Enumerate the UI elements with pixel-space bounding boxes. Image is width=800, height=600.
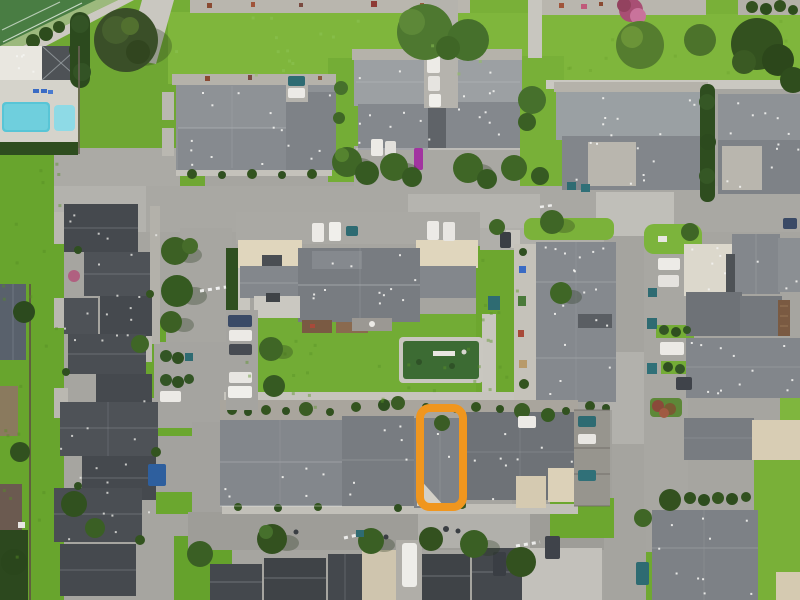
rowc-roof <box>264 558 326 600</box>
shrub <box>247 169 257 179</box>
patio-item <box>18 522 25 528</box>
car-white <box>427 221 439 240</box>
roof-vents <box>659 133 661 135</box>
roof-vents <box>643 179 645 181</box>
roof-vents <box>653 160 655 162</box>
roof-vents <box>602 248 604 250</box>
pedestrian-dot <box>443 526 449 532</box>
shrub <box>726 493 738 505</box>
grass-texture <box>43 250 46 253</box>
roof-vents <box>281 129 283 131</box>
clubhouse-beige-east <box>416 240 478 268</box>
grass-texture <box>55 163 58 166</box>
shrub <box>282 407 290 415</box>
grass-texture <box>291 62 294 65</box>
hedge <box>226 248 238 318</box>
grass-texture <box>306 371 309 374</box>
roof-vents <box>750 593 752 595</box>
roof-vents <box>757 261 759 263</box>
shrub <box>760 3 772 15</box>
roof-vents <box>590 142 592 144</box>
roof-vents <box>602 123 604 125</box>
grass-texture <box>497 311 500 314</box>
roof-vents <box>479 116 481 118</box>
roof-vents <box>359 77 361 79</box>
shrub <box>26 34 40 48</box>
car-dark <box>545 536 560 559</box>
shrub <box>151 447 161 457</box>
roof-vents <box>138 296 140 298</box>
roof-vents <box>106 313 108 315</box>
grass-texture <box>286 49 289 52</box>
grass-texture <box>505 376 508 379</box>
roof-vents <box>332 263 334 265</box>
roof-vents <box>270 112 272 114</box>
tree-small <box>434 415 450 431</box>
roof-vents <box>573 269 575 271</box>
roof-vents <box>555 248 557 250</box>
roof-vents <box>708 288 710 290</box>
roof-vents <box>671 524 673 526</box>
tree <box>10 442 30 462</box>
roof-vents <box>739 186 741 188</box>
roof-vents <box>704 592 706 594</box>
roof-vents <box>691 342 693 344</box>
roof-vents <box>238 92 240 94</box>
grass-texture <box>175 50 178 53</box>
tree-small <box>541 408 555 422</box>
tree <box>518 86 546 114</box>
shrub <box>314 503 322 511</box>
grass-texture <box>567 67 570 70</box>
shrub <box>218 171 226 179</box>
carport-beige <box>548 468 577 502</box>
grass-texture <box>255 74 258 77</box>
shrub <box>671 327 681 337</box>
grass-texture <box>605 57 608 60</box>
grass-texture <box>319 33 322 36</box>
pedestrian-dot <box>384 535 389 540</box>
dumpster-teal <box>488 296 500 310</box>
roof-vents <box>224 488 226 490</box>
shrub <box>684 492 696 504</box>
roof-vents <box>554 313 556 315</box>
roof-vents <box>785 287 787 289</box>
patio-item <box>599 2 603 6</box>
roof-vents <box>604 117 606 119</box>
roof-vents <box>724 272 726 274</box>
roof-vents <box>313 297 315 299</box>
shrub <box>62 368 70 376</box>
roof-vents <box>383 294 385 296</box>
grass-texture <box>19 385 22 388</box>
shrub <box>351 402 361 412</box>
roof-vents <box>384 429 386 431</box>
grass-texture <box>407 386 410 389</box>
tree <box>732 50 756 74</box>
shrub <box>74 482 82 490</box>
grass-texture <box>39 169 42 172</box>
roof-vents <box>691 249 693 251</box>
car-white <box>578 434 596 444</box>
shrub <box>53 21 65 33</box>
roof-vents <box>709 538 711 540</box>
dumpster-teal <box>185 353 193 361</box>
roof-vents <box>107 238 109 240</box>
cypress-tree <box>73 63 91 81</box>
tree <box>182 238 198 254</box>
tree <box>94 8 158 72</box>
playground-equipment <box>449 363 455 369</box>
dumpster-teal <box>356 530 364 537</box>
car-dark <box>500 232 511 248</box>
building-r2-roof <box>686 292 742 336</box>
patio-item <box>318 76 322 80</box>
neighbor-house-roof <box>0 386 18 436</box>
roof-vent-large <box>262 255 282 266</box>
grass-texture <box>478 365 481 368</box>
grass-texture <box>292 374 295 377</box>
grass-texture <box>332 36 335 39</box>
building-r4-roof <box>684 418 754 460</box>
grass-texture <box>484 304 487 307</box>
roof-vents <box>752 370 754 372</box>
building-a3b-inset <box>722 146 762 190</box>
grass-texture <box>42 491 45 494</box>
pool-lounger <box>41 89 47 93</box>
car-teal <box>636 562 649 585</box>
grass-texture <box>38 519 41 522</box>
grass-texture <box>7 434 10 437</box>
roof-vents <box>771 167 773 169</box>
roof-vents <box>261 163 263 165</box>
roof-vents <box>350 265 352 267</box>
shrub <box>663 362 673 372</box>
tree <box>501 155 527 181</box>
car-white <box>428 76 440 91</box>
tree <box>259 525 273 539</box>
tree <box>419 527 443 551</box>
roof-vents <box>134 438 136 440</box>
roof-vents <box>595 289 597 291</box>
grass-texture <box>516 290 519 293</box>
pedestrian-dot <box>456 529 461 534</box>
roof-vents <box>595 319 597 321</box>
car-white <box>312 223 324 242</box>
grass-texture <box>457 72 460 75</box>
roof-vents <box>545 247 547 249</box>
roof-vents <box>359 123 361 125</box>
roof-vents <box>505 465 507 467</box>
roof-vents <box>602 97 604 99</box>
roof-vents <box>18 67 20 69</box>
tree <box>477 169 497 189</box>
car-white <box>329 222 341 241</box>
roof-vents <box>498 134 500 136</box>
car-blue <box>783 218 797 229</box>
roof-vents <box>719 255 721 257</box>
shrub <box>774 0 786 12</box>
roof-vents <box>711 263 713 265</box>
roof-vents <box>637 147 639 149</box>
grass-texture <box>4 429 7 432</box>
roof-vents <box>630 183 632 185</box>
roof-vents <box>788 133 790 135</box>
roof-vents <box>737 102 739 104</box>
roof-vents <box>358 142 360 144</box>
shrub <box>378 399 390 411</box>
building-r2-roof <box>740 296 782 336</box>
grass-texture <box>431 44 434 47</box>
grass-texture <box>487 339 490 342</box>
car-white <box>371 139 383 156</box>
tree <box>634 509 652 527</box>
shrub <box>712 492 724 504</box>
shrub <box>187 169 197 179</box>
shrub <box>675 364 685 374</box>
roof-vents <box>730 132 732 134</box>
patio-table <box>369 321 375 327</box>
roof-vents <box>562 305 564 307</box>
car-teal <box>346 226 358 236</box>
pedestrian-dot <box>294 530 299 535</box>
roof-vents <box>390 126 392 128</box>
car-white <box>443 222 455 241</box>
grass-texture <box>490 340 493 343</box>
roof-vents <box>492 498 494 500</box>
shrub <box>698 494 710 506</box>
grass-texture <box>499 366 502 369</box>
car-teal <box>578 470 596 481</box>
tree <box>13 301 35 323</box>
walk-top-gap <box>528 0 542 58</box>
van-white <box>402 543 417 587</box>
tree <box>659 489 681 511</box>
roof-vents <box>437 433 439 435</box>
roof-vents <box>369 114 371 116</box>
tree <box>436 36 460 60</box>
roof-vents <box>211 156 213 158</box>
grass-texture <box>467 348 470 351</box>
roof-vents <box>676 573 678 575</box>
roof-inset-dark <box>726 254 735 292</box>
roof-vents <box>414 279 416 281</box>
hedge-pool <box>0 142 78 155</box>
grass-texture <box>381 400 384 403</box>
tree-small <box>391 396 405 410</box>
rowb-roof-west <box>220 420 342 506</box>
roof-vents <box>282 476 284 478</box>
roof-vents <box>399 70 401 72</box>
clubhouse-center-sub <box>312 251 362 269</box>
shrub <box>160 350 172 362</box>
patio-item <box>581 4 587 9</box>
tree <box>121 17 139 35</box>
roof-vents <box>658 548 660 550</box>
grass-texture <box>252 17 255 20</box>
roof-vents <box>716 247 718 249</box>
grass-texture <box>295 340 298 343</box>
roof-vents <box>609 367 611 369</box>
roof-vents <box>87 427 89 429</box>
roof-vents <box>720 390 722 392</box>
roof-vents <box>564 253 566 255</box>
roof-vents <box>571 461 573 463</box>
rowhouse-roof <box>60 402 158 456</box>
pool-lounger <box>48 90 53 94</box>
tree <box>333 112 345 124</box>
roof-vents <box>583 292 585 294</box>
grass-texture <box>779 20 782 23</box>
roof-vents <box>689 99 691 101</box>
roof-vents <box>787 389 789 391</box>
patio-item <box>518 296 526 306</box>
grass-texture <box>270 17 273 20</box>
roof-vents <box>273 127 275 129</box>
roof-vents <box>702 578 704 580</box>
shrub <box>39 27 53 41</box>
roof-vents <box>353 482 355 484</box>
roof-vents <box>596 143 598 145</box>
roof-vents <box>64 328 66 330</box>
roof-vents <box>610 134 612 136</box>
grass-texture <box>309 352 312 355</box>
roof-vents <box>60 448 62 450</box>
roof-vents <box>155 234 157 236</box>
grass-texture <box>17 433 20 436</box>
pool-lounger <box>33 89 39 93</box>
roof-vents <box>448 456 450 458</box>
roof-vents <box>693 104 695 106</box>
shrub <box>788 5 798 15</box>
grass-texture <box>9 497 12 500</box>
roof-vents <box>752 114 754 116</box>
shrub <box>307 169 317 179</box>
tree <box>263 375 285 397</box>
roof-vents <box>764 112 766 114</box>
roof-vents <box>401 439 403 441</box>
shrub <box>172 352 184 364</box>
roof-vents <box>403 112 405 114</box>
patio <box>162 92 174 120</box>
aerial-scene <box>0 0 800 600</box>
building-a3a-inset <box>588 142 636 186</box>
roof-vents <box>127 334 129 336</box>
grass-texture <box>378 365 381 368</box>
carport-beige <box>516 476 546 508</box>
tree <box>335 148 349 162</box>
roof-vents <box>406 459 408 461</box>
roof-vents <box>116 335 118 337</box>
roof-vents <box>500 458 502 460</box>
roof-vents <box>80 477 82 479</box>
tree <box>85 518 105 538</box>
spa-pool <box>54 105 75 131</box>
clubhouse-gable-east <box>418 266 476 298</box>
roof-vents <box>746 520 748 522</box>
patio-item <box>251 2 255 7</box>
grass-texture <box>727 71 730 74</box>
grass-texture <box>3 489 6 492</box>
shrub <box>184 374 194 384</box>
roof-vents <box>202 92 204 94</box>
tree-small <box>299 402 313 416</box>
roof-vents <box>606 325 608 327</box>
roof-vents <box>739 384 741 386</box>
patio-item <box>299 3 303 7</box>
roof-vents <box>323 473 325 475</box>
roof-vents <box>229 496 231 498</box>
roof-vents <box>390 288 392 290</box>
patio-strip <box>554 82 708 92</box>
grass-texture <box>292 392 295 395</box>
dumpster-teal <box>567 182 576 190</box>
roof-vents <box>68 538 70 540</box>
car-white <box>658 275 679 287</box>
roof-vents <box>191 164 193 166</box>
roof-vents <box>489 122 491 124</box>
shrub <box>234 503 242 511</box>
tree <box>540 210 564 234</box>
tree <box>518 113 536 131</box>
shrub <box>562 407 570 415</box>
grass-texture <box>674 55 677 58</box>
patio-item <box>519 266 526 273</box>
shrub <box>172 376 184 388</box>
tree <box>259 337 283 361</box>
roof-vents <box>717 392 719 394</box>
tree <box>684 24 716 56</box>
car-white <box>660 342 684 355</box>
tree <box>1 549 27 575</box>
grass-texture <box>16 261 19 264</box>
tree <box>61 491 87 517</box>
building-r1-gable <box>778 238 800 292</box>
grass-texture <box>589 69 592 72</box>
car-blue <box>148 464 166 486</box>
roof-vents <box>73 214 75 216</box>
roof-vents <box>96 467 98 469</box>
hedge-tree <box>700 134 716 150</box>
roof-vents <box>579 256 581 258</box>
roof-vents <box>106 492 108 494</box>
roof-vents <box>329 94 331 96</box>
roof-vents <box>131 254 133 256</box>
roof-vents <box>720 347 722 349</box>
roof-vents <box>489 72 491 74</box>
building-r4-beige <box>752 420 800 460</box>
grass-texture <box>277 50 280 53</box>
patio-item <box>559 3 564 8</box>
tree <box>399 9 425 35</box>
hedge-tree <box>699 168 715 184</box>
grass-texture <box>2 285 5 288</box>
roof-vents <box>74 339 76 341</box>
tree <box>621 26 643 48</box>
flower-bush <box>659 408 669 418</box>
shrub <box>278 171 286 179</box>
roof-vents <box>474 460 476 462</box>
roof-vents <box>489 92 491 94</box>
roof-vents <box>116 295 118 297</box>
patio-item <box>266 293 280 302</box>
roof-vents <box>560 380 562 382</box>
building-a2-court <box>428 104 446 148</box>
shrub <box>659 325 669 335</box>
roof-vents <box>130 319 132 321</box>
roof-vents <box>617 118 619 120</box>
tree <box>131 335 149 353</box>
